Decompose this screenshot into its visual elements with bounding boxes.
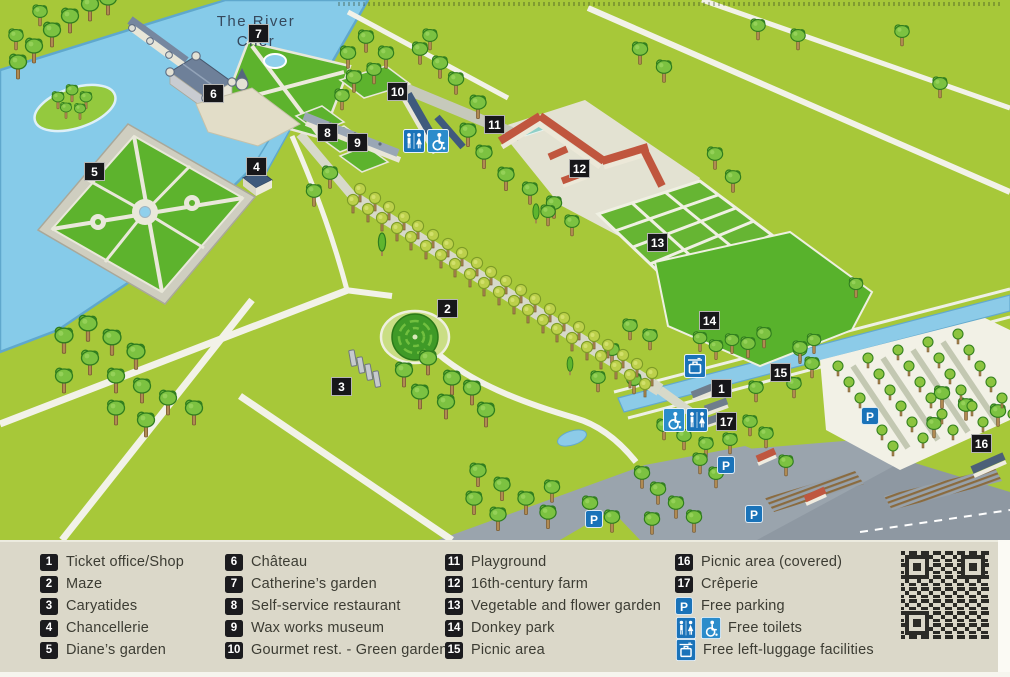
legend-item-gourmet-restaurant: 10Gourmet rest. - Green garden	[225, 639, 448, 661]
legend-number-badge: 16	[675, 554, 693, 571]
legend-item-chateau: 6Château	[225, 551, 448, 573]
legend-label: Chancellerie	[66, 620, 149, 636]
map-marker-1: 1	[711, 379, 732, 398]
wheelchair-icon	[700, 617, 722, 639]
maze	[381, 311, 449, 363]
map-canvas	[0, 0, 1010, 540]
map-marker-2: 2	[437, 299, 458, 318]
parking-icon: P	[675, 597, 693, 615]
legend-item-maze: 2Maze	[40, 573, 184, 595]
legend-label: Maze	[66, 576, 102, 592]
legend-label: Ticket office/Shop	[66, 554, 184, 570]
legend-number-badge: 6	[225, 554, 243, 571]
legend-column-3: 11Playground 1216th-century farm 13Veget…	[445, 551, 661, 661]
legend-number-badge: 4	[40, 620, 58, 637]
legend-item-donkey-park: 14Donkey park	[445, 617, 661, 639]
wheelchair-icon	[663, 408, 685, 432]
parking-icon: P	[745, 505, 763, 523]
qr-code	[901, 551, 989, 639]
legend-label: Self-service restaurant	[251, 598, 401, 614]
credits-strip	[338, 2, 1000, 6]
legend-label: 16th-century farm	[471, 576, 588, 592]
legend-item-wax-works-museum: 9Wax works museum	[225, 617, 448, 639]
map-marker-8: 8	[317, 123, 338, 142]
legend-label: Picnic area (covered)	[701, 554, 842, 570]
legend-column-2: 6Château 7Catherine’s garden 8Self-servi…	[225, 551, 448, 661]
legend-item-caryatides: 3Caryatides	[40, 595, 184, 617]
legend-column-1: 1Ticket office/Shop 2Maze 3Caryatides 4C…	[40, 551, 184, 661]
legend-label: Donkey park	[471, 620, 555, 636]
map-marker-7: 7	[248, 24, 269, 43]
legend-label: Wax works museum	[251, 620, 384, 636]
left-luggage-icon	[684, 354, 706, 378]
legend-number-badge: 11	[445, 554, 463, 571]
legend-item-16th-century-farm: 1216th-century farm	[445, 573, 661, 595]
map-marker-13: 13	[647, 233, 668, 252]
legend-item-ticket-office: 1Ticket office/Shop	[40, 551, 184, 573]
legend-item-self-service-restaurant: 8Self-service restaurant	[225, 595, 448, 617]
legend-number-badge: 12	[445, 576, 463, 593]
toilets-icon	[675, 617, 697, 639]
toilets-icon	[686, 408, 708, 432]
legend-item-creperie: 17Crêperie	[675, 573, 874, 595]
legend-item-left-luggage: Free left-luggage facilities	[675, 639, 874, 661]
legend-item-playground: 11Playground	[445, 551, 661, 573]
legend-label: Diane’s garden	[66, 642, 166, 658]
legend-label: Crêperie	[701, 576, 758, 592]
legend-label: Playground	[471, 554, 546, 570]
legend-label: Château	[251, 554, 307, 570]
legend-number-badge: 9	[225, 620, 243, 637]
legend-label: Free left-luggage facilities	[703, 642, 874, 658]
legend-item-catherines-garden: 7Catherine’s garden	[225, 573, 448, 595]
map-marker-12: 12	[569, 159, 590, 178]
legend: 1Ticket office/Shop 2Maze 3Caryatides 4C…	[0, 540, 1010, 677]
map-marker-9: 9	[347, 133, 368, 152]
legend-label: Picnic area	[471, 642, 545, 658]
map-marker-16: 16	[971, 434, 992, 453]
park-map: The River Cher 1 2 3 4 5 6 7 8 9 10 11 1…	[0, 0, 1010, 540]
legend-label: Free toilets	[728, 620, 802, 636]
legend-item-vegetable-garden: 13Vegetable and flower garden	[445, 595, 661, 617]
wheelchair-icon	[427, 129, 449, 153]
legend-item-free-parking: PFree parking	[675, 595, 874, 617]
legend-number-badge: 7	[225, 576, 243, 593]
legend-number-badge: 5	[40, 642, 58, 659]
map-marker-6: 6	[203, 84, 224, 103]
legend-item-chancellerie: 4Chancellerie	[40, 617, 184, 639]
legend-column-4: 16Picnic area (covered) 17Crêperie PFree…	[675, 551, 874, 661]
legend-item-picnic-area: 15Picnic area	[445, 639, 661, 661]
map-marker-15: 15	[770, 363, 791, 382]
legend-label: Gourmet rest. - Green garden	[251, 642, 448, 658]
map-marker-11: 11	[484, 115, 505, 134]
legend-number-badge: 10	[225, 642, 243, 659]
legend-number-badge: 8	[225, 598, 243, 615]
legend-number-badge: 1	[40, 554, 58, 571]
legend-number-badge: 15	[445, 642, 463, 659]
page-edge-right	[998, 540, 1010, 677]
legend-number-badge: 2	[40, 576, 58, 593]
legend-number-badge: 13	[445, 598, 463, 615]
map-marker-10: 10	[387, 82, 408, 101]
map-marker-4: 4	[246, 157, 267, 176]
left-luggage-icon	[675, 639, 697, 661]
toilets-icon	[403, 129, 425, 153]
legend-item-dianes-garden: 5Diane’s garden	[40, 639, 184, 661]
legend-label: Vegetable and flower garden	[471, 598, 661, 614]
legend-label: Catherine’s garden	[251, 576, 377, 592]
legend-item-free-toilets: Free toilets	[675, 617, 874, 639]
legend-number-badge: 14	[445, 620, 463, 637]
map-marker-5: 5	[84, 162, 105, 181]
parking-icon: P	[585, 510, 603, 528]
parking-icon: P	[717, 456, 735, 474]
parking-icon: P	[861, 407, 879, 425]
legend-number-badge: 3	[40, 598, 58, 615]
map-marker-3: 3	[331, 377, 352, 396]
map-marker-14: 14	[699, 311, 720, 330]
legend-number-badge: 17	[675, 576, 693, 593]
page-edge-bottom	[0, 672, 1010, 677]
legend-item-picnic-covered: 16Picnic area (covered)	[675, 551, 874, 573]
map-marker-17: 17	[716, 412, 737, 431]
legend-label: Caryatides	[66, 598, 137, 614]
legend-label: Free parking	[701, 598, 785, 614]
